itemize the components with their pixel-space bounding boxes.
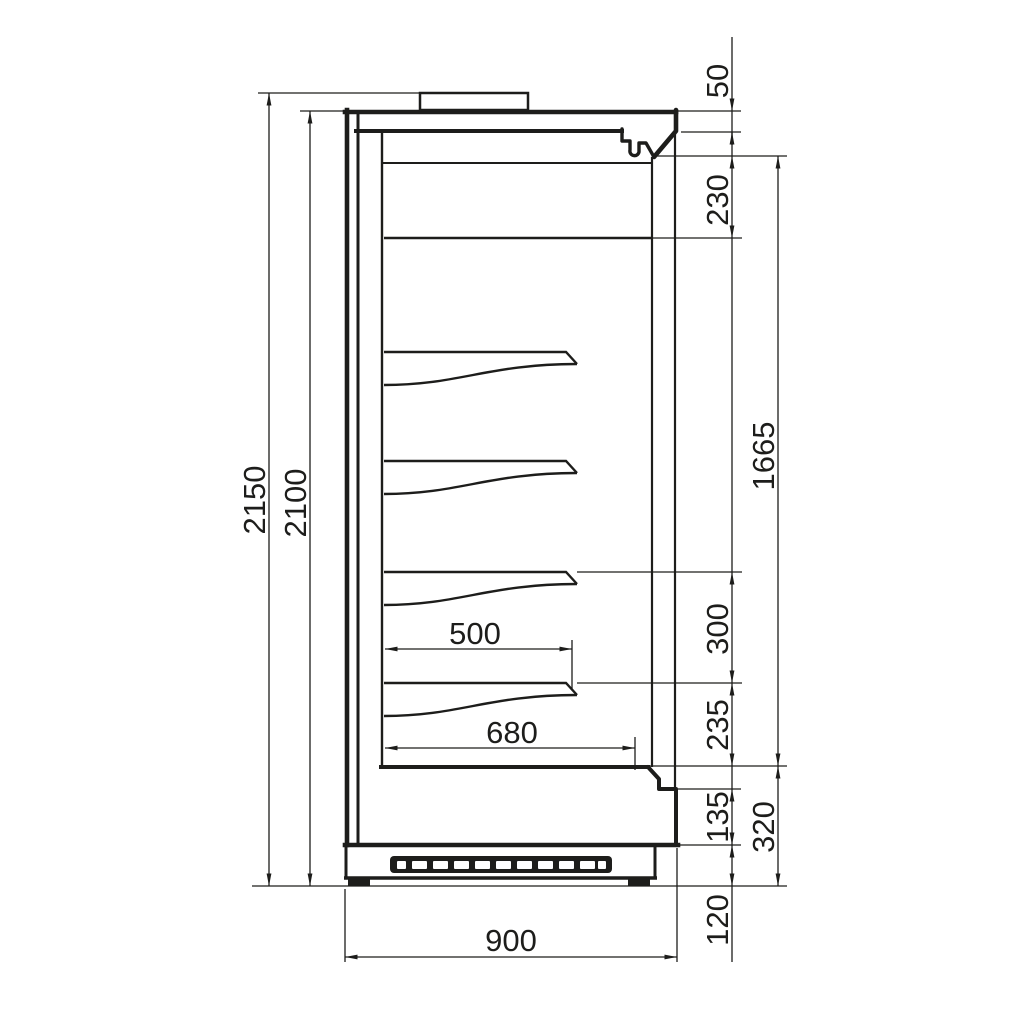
technical-drawing-page: 2150 2100 50 230 300 235 135 120 1665 32…	[0, 0, 1024, 1024]
dim-label-front-panel: 135	[700, 791, 735, 843]
dim-label-shelf-depth: 500	[449, 616, 501, 651]
front-foot	[628, 878, 650, 886]
dimension-labels: 2150 2100 50 230 300 235 135 120 1665 32…	[237, 64, 781, 958]
top-mounting-block	[420, 93, 528, 110]
dim-label-base-section: 320	[746, 801, 781, 853]
dim-label-top-clearance: 230	[700, 174, 735, 226]
dim-label-overall-depth: 900	[485, 923, 537, 958]
shelves	[384, 238, 742, 716]
dim-label-overall-height: 2150	[237, 466, 272, 535]
dim-label-bottom-clearance: 235	[700, 699, 735, 751]
air-discharge-profile	[622, 129, 654, 157]
shelf	[384, 461, 577, 494]
dim-label-shelf-spacing: 300	[700, 603, 735, 655]
dim-label-display-opening: 1665	[746, 422, 781, 491]
dim-label-deck-depth: 680	[486, 715, 538, 750]
shelf	[384, 352, 577, 385]
base-plinth	[344, 845, 657, 886]
front-sill-profile	[648, 767, 676, 845]
dim-label-canopy-front: 50	[700, 64, 735, 98]
shelf	[384, 572, 577, 605]
dim-label-plinth-height: 120	[700, 894, 735, 946]
shelf	[384, 683, 577, 716]
ventilation-grille	[390, 856, 612, 873]
multideck-section-drawing: 2150 2100 50 230 300 235 135 120 1665 32…	[0, 0, 1024, 1024]
canopy-front-edge	[654, 110, 676, 157]
rear-foot	[348, 878, 370, 886]
dim-label-body-height: 2100	[278, 469, 313, 538]
